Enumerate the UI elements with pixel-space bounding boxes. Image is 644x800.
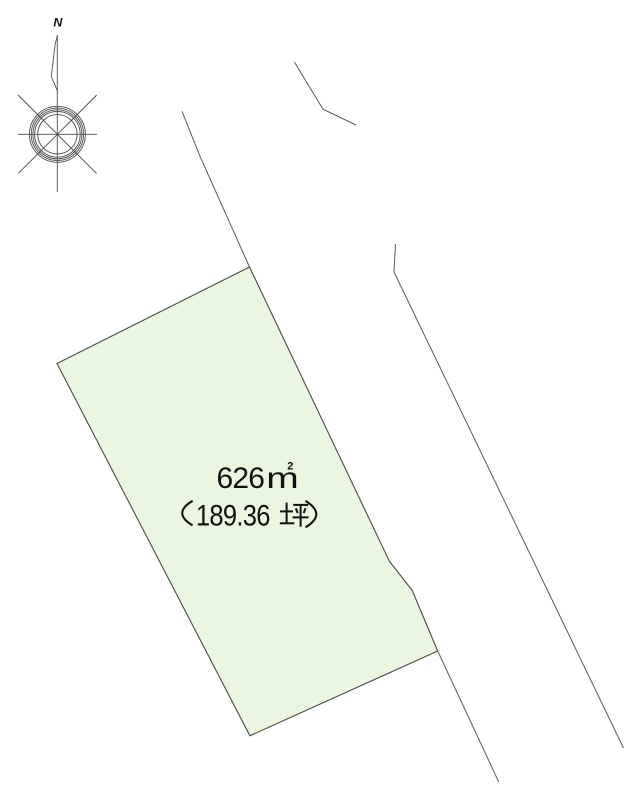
svg-text:189.36: 189.36 <box>196 499 270 532</box>
svg-text:N: N <box>53 15 63 29</box>
svg-text:626: 626 <box>217 462 265 495</box>
svg-text:2: 2 <box>287 460 293 472</box>
svg-text:m: m <box>266 462 298 495</box>
